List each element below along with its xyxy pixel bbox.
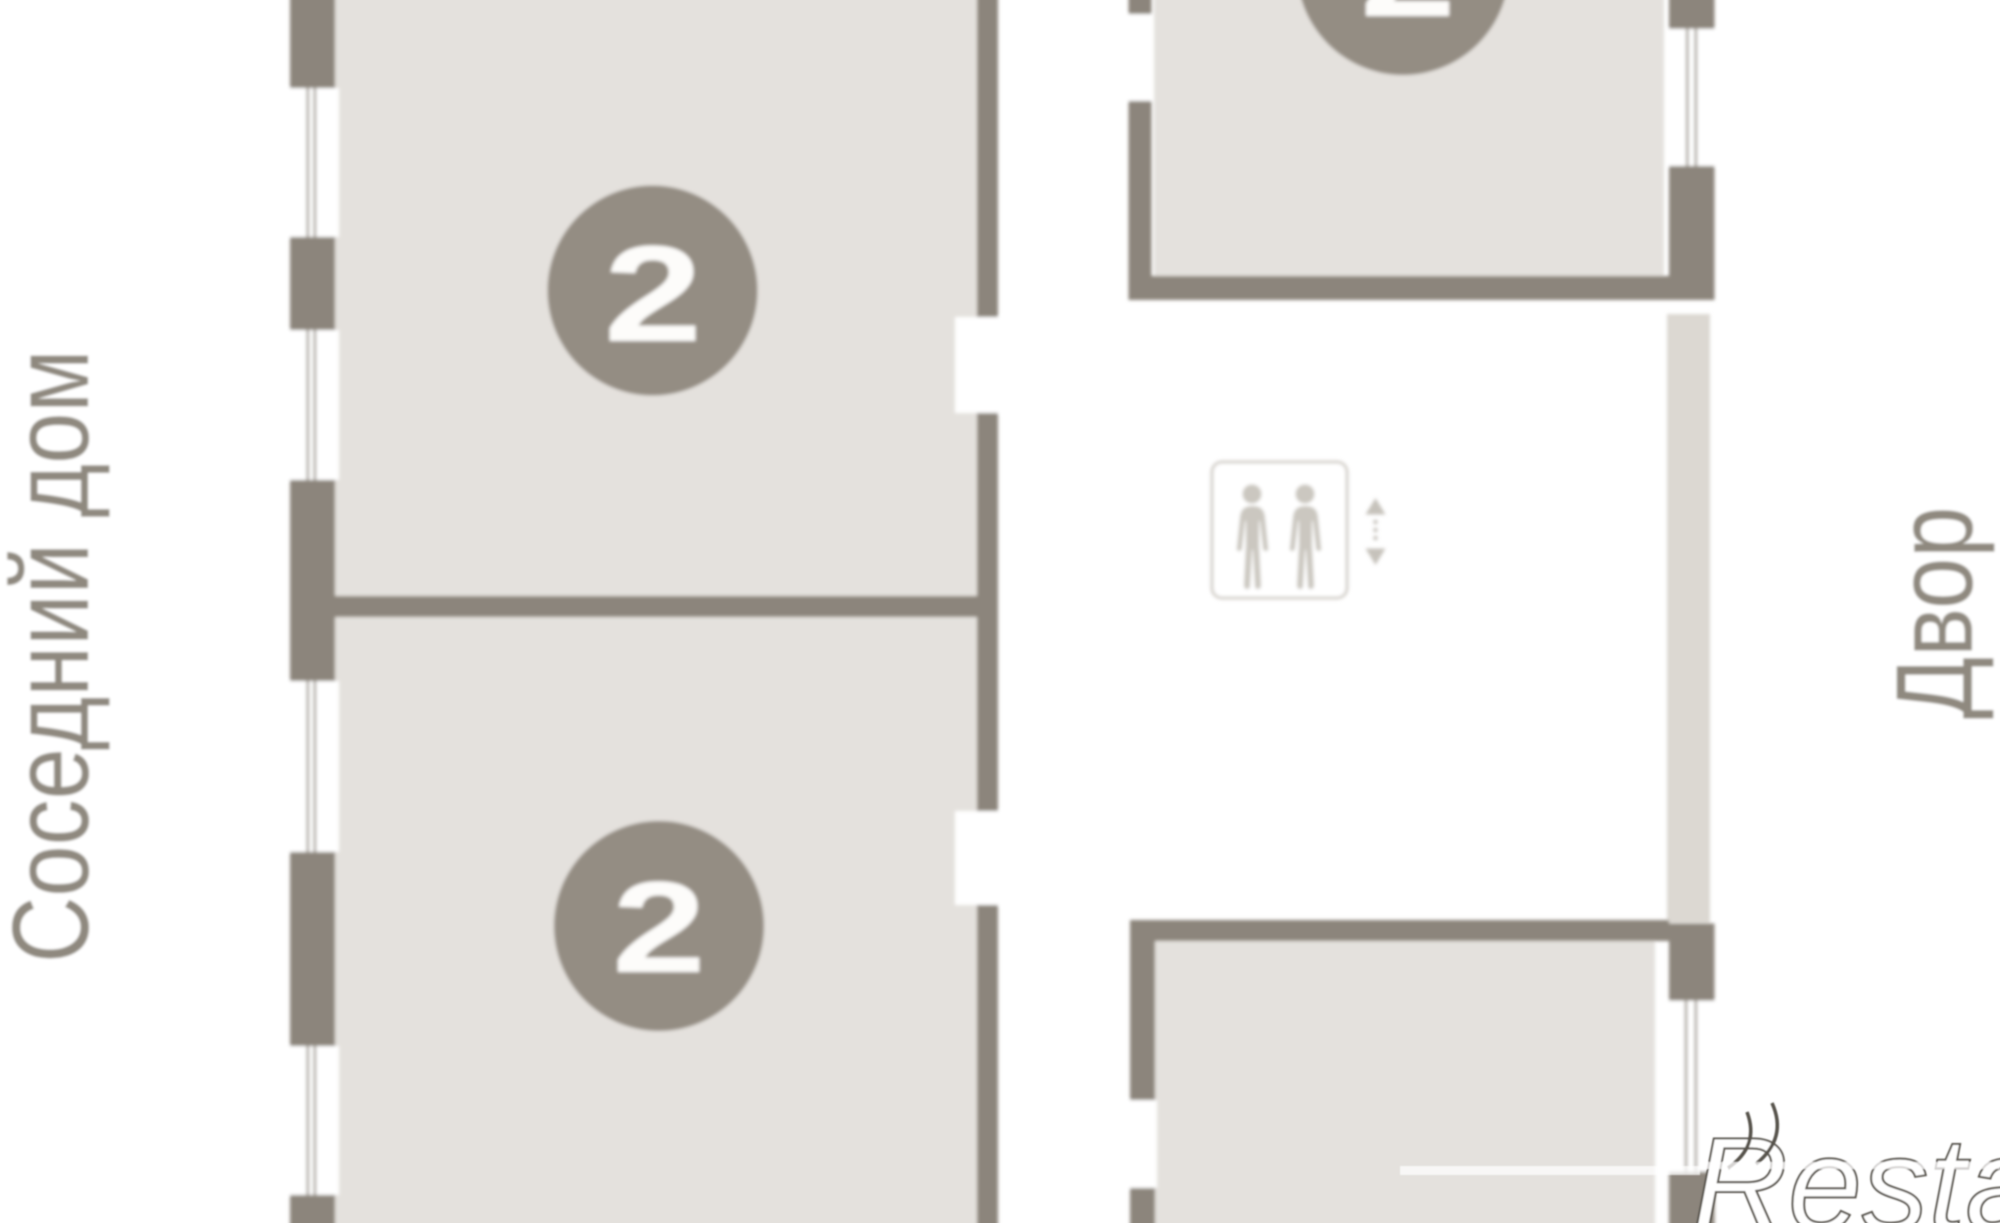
svg-text:Двор: Двор xyxy=(1875,507,1996,719)
svg-text:2: 2 xyxy=(1360,0,1456,44)
svg-text:Соседний дом: Соседний дом xyxy=(0,349,112,963)
svg-text:2: 2 xyxy=(612,855,706,1000)
svg-text:2: 2 xyxy=(603,217,702,370)
